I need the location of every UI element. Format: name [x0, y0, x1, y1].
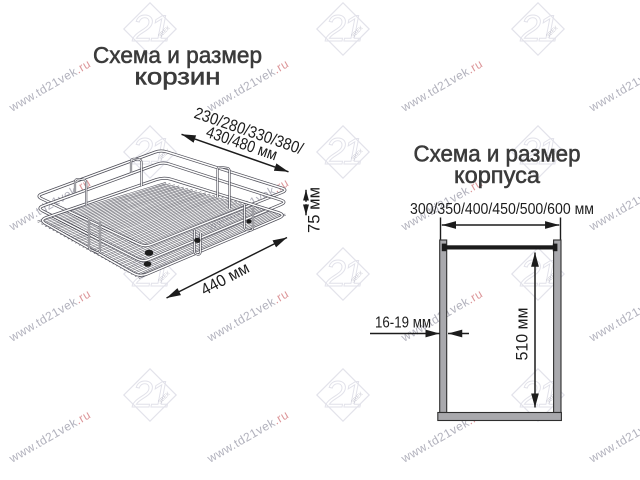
svg-text:21: 21 — [324, 253, 361, 294]
svg-text:www.td21vek.ru: www.td21vek.ru — [586, 287, 640, 345]
svg-text:www.td21vek.ru: www.td21vek.ru — [6, 287, 93, 345]
svg-text:510 мм: 510 мм — [513, 308, 532, 361]
svg-text:21: 21 — [324, 374, 361, 415]
svg-text:300/350/400/450/500/600 мм: 300/350/400/450/500/600 мм — [410, 201, 594, 218]
svg-text:www.td21vek.ru: www.td21vek.ru — [6, 57, 93, 115]
svg-text:21: 21 — [519, 253, 556, 294]
svg-text:21: 21 — [131, 374, 168, 415]
svg-text:21: 21 — [324, 131, 361, 172]
svg-text:www.td21vek.ru: www.td21vek.ru — [586, 176, 640, 234]
svg-text:21: 21 — [519, 374, 556, 415]
svg-text:www.td21vek.ru: www.td21vek.ru — [6, 408, 93, 466]
svg-text:корзин: корзин — [135, 64, 221, 90]
svg-text:www.td21vek.ru: www.td21vek.ru — [204, 287, 291, 345]
svg-text:www.td21vek.ru: www.td21vek.ru — [586, 408, 640, 466]
svg-text:21: 21 — [519, 8, 556, 49]
svg-text:21: 21 — [324, 8, 361, 49]
svg-text:www.td21vek.ru: www.td21vek.ru — [586, 57, 640, 115]
svg-text:корпуса: корпуса — [454, 162, 540, 188]
svg-text:www.td21vek.ru: www.td21vek.ru — [398, 57, 485, 115]
svg-text:16-19 мм: 16-19 мм — [375, 315, 431, 332]
svg-text:www.td21vek.ru: www.td21vek.ru — [204, 408, 291, 466]
svg-text:75 мм: 75 мм — [306, 187, 324, 233]
svg-text:440 мм: 440 мм — [198, 259, 252, 299]
